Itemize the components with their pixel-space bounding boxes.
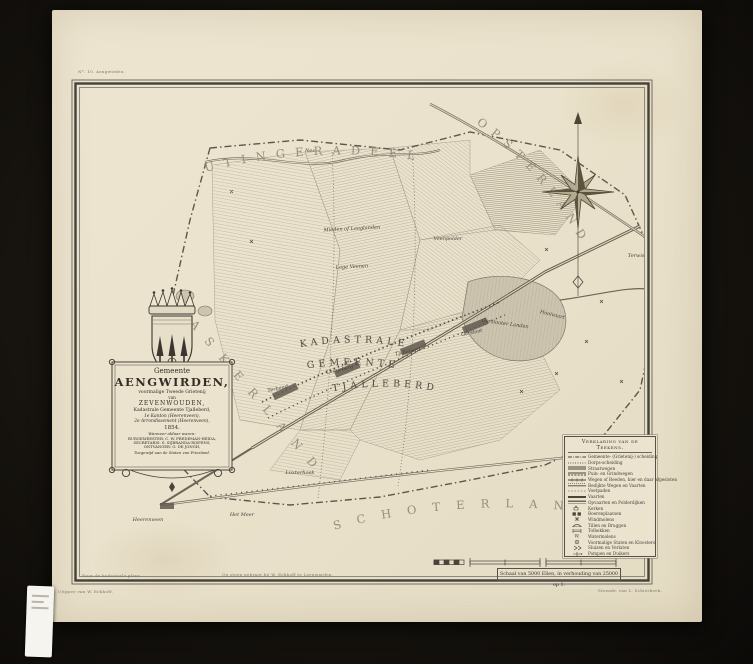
map-label: Nes (304, 148, 315, 154)
legend-label: Wegen of Reeden, hier en daar afgesloten (588, 477, 677, 482)
legend-label: Puin- en Grindwegen (588, 471, 633, 476)
cartouche-dedication: Toegewijd aan de Staten van Friesland. (112, 451, 232, 455)
cartouche-line: 2e Arrondissement (Heerenveen), (112, 419, 232, 424)
map-artwork: UTINGERADEEL OPSTERLAND SCHOTERLAND HASK… (0, 0, 753, 664)
municipality-title: AENGWIRDEN, (112, 376, 232, 389)
legend-label: Gemeente- (Grietenij-) scheiding (588, 454, 657, 459)
legend-label: Straatwegen (588, 466, 615, 471)
legend-label: Voormalige Staten en Kloosters (588, 540, 655, 545)
cartouche-line: Gemeente (112, 367, 232, 375)
legend-label: Sluizen en Verlaten (588, 545, 629, 550)
scale-bar-checker (434, 560, 464, 565)
cartouche: Gemeente AENGWIRDEN, voormalige Tweede G… (112, 364, 232, 470)
legend-label: Dorps-scheiding (588, 460, 623, 465)
scale-bar (434, 558, 616, 567)
legend-label: Opvaarten en Polderdijken (588, 500, 645, 505)
plate-number-note: N°. 10. Aengwirden. (78, 69, 125, 74)
pomp-icon (568, 551, 588, 557)
legend-label: Tolhekken (588, 528, 610, 533)
legend-label: Pompen en Duikers (588, 551, 629, 556)
legend-label: Watermolens (588, 534, 616, 539)
cartouche-line: ZEVENWOUDEN, (112, 401, 232, 408)
legend-label: Vaarten (588, 494, 605, 499)
sticker-mark (32, 601, 44, 603)
credit-under-left: Uitgave van W. Eekhoff. (58, 589, 113, 594)
map-label: Luxterhoek (285, 470, 315, 476)
legend-rows: Gemeente- (Grietenij-) scheidingDorps-sc… (568, 454, 652, 556)
hooivaart-line (560, 289, 655, 300)
map-label: Het Meer (229, 512, 255, 518)
small-pond (198, 306, 212, 316)
map-label: Veenpolder (434, 236, 463, 242)
legend-label: Kerken (588, 506, 603, 511)
legend-title: Verklaring van de Teekens. (568, 439, 652, 453)
credit-inside-left: Naar de kadastrale plans. (82, 573, 142, 578)
sticker-mark (32, 595, 49, 598)
legend-label: Bedijkte Wegen en Vaarten (588, 483, 646, 488)
map-label: Heerenveen (132, 517, 164, 523)
scale-caption: Schaal van 5000 Ellen, in verhouding van… (497, 568, 621, 581)
sticker-mark (31, 607, 48, 610)
legend-row: Pompen en Duikers (568, 551, 652, 557)
legend-label: Voetpaden (588, 488, 610, 493)
library-label-sticker (25, 586, 54, 658)
cartouche-line: ONTVANGER: G. DE JONGH, (112, 445, 232, 449)
legend-panel: Verklaring van de Teekens. Gemeente- (Gr… (564, 436, 656, 557)
photo-background: UTINGERADEEL OPSTERLAND SCHOTERLAND HASK… (0, 0, 753, 664)
legend-label: Windmolens (588, 517, 614, 522)
credit-under-right: Steendr. van L. Schierbeek. (598, 588, 662, 593)
credit-inside-center: Op steen gebragt bij W. Eekhoff te Leeuw… (222, 572, 333, 577)
legend-label: Boerenplaatsen (588, 511, 621, 516)
legend-label: Tillen en Bruggen (588, 523, 626, 528)
